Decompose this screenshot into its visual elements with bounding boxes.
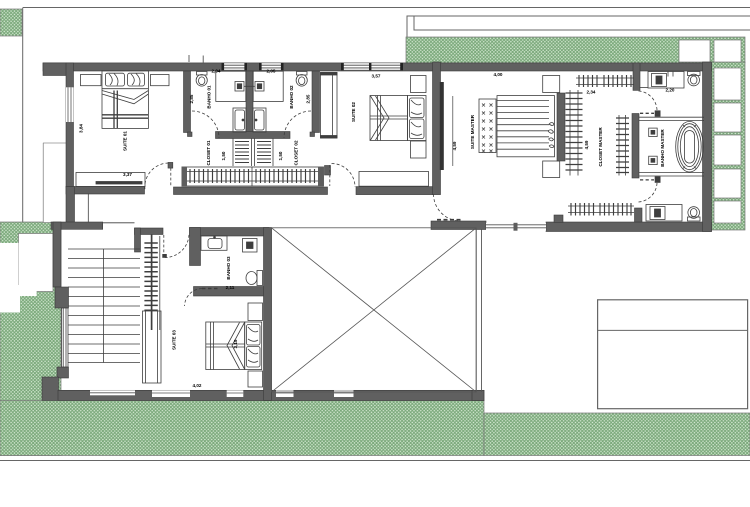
svg-text:CLOSET 02: CLOSET 02 <box>294 140 299 165</box>
svg-text:SUITE 03: SUITE 03 <box>172 330 177 350</box>
svg-text:3,57: 3,57 <box>372 74 381 79</box>
svg-text:4,59: 4,59 <box>452 141 457 150</box>
svg-text:1,50: 1,50 <box>278 151 283 160</box>
svg-text:2,85: 2,85 <box>189 94 194 103</box>
svg-text:2,05: 2,05 <box>267 68 276 73</box>
svg-text:SUITE 01: SUITE 01 <box>123 131 128 151</box>
svg-text:4,00: 4,00 <box>494 72 503 77</box>
svg-text:3,37: 3,37 <box>123 172 132 177</box>
svg-text:SUITE 02: SUITE 02 <box>351 102 356 122</box>
svg-text:SUITE MASTER: SUITE MASTER <box>470 114 475 149</box>
svg-text:3,15: 3,15 <box>233 339 238 348</box>
svg-text:CLOSET 01: CLOSET 01 <box>206 140 211 165</box>
svg-text:2,20: 2,20 <box>666 88 675 93</box>
svg-text:CLOSET MASTER: CLOSET MASTER <box>598 127 603 167</box>
svg-text:2,04: 2,04 <box>212 68 221 73</box>
svg-text:2,11: 2,11 <box>226 285 235 290</box>
svg-text:2,34: 2,34 <box>587 90 596 95</box>
svg-text:BANHO 02: BANHO 02 <box>289 85 294 109</box>
svg-text:4,59: 4,59 <box>584 140 589 149</box>
svg-text:1,50: 1,50 <box>221 151 226 160</box>
svg-text:BANHO MASTER: BANHO MASTER <box>660 129 665 167</box>
svg-text:4,02: 4,02 <box>193 383 202 388</box>
svg-text:3,84: 3,84 <box>79 124 84 133</box>
svg-text:BANHO 01: BANHO 01 <box>207 85 212 109</box>
svg-text:BANHO 03: BANHO 03 <box>226 256 231 280</box>
svg-text:2,85: 2,85 <box>306 94 311 103</box>
